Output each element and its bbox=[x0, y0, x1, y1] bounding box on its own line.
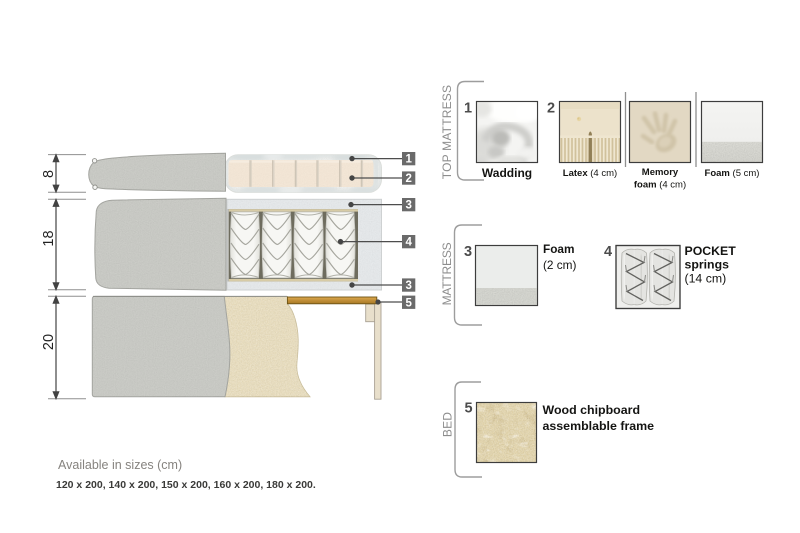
svg-text:120 x 200, 140 x 200, 150 x 20: 120 x 200, 140 x 200, 150 x 200, 160 x 2… bbox=[56, 479, 316, 491]
svg-text:foam (4 cm): foam (4 cm) bbox=[634, 180, 686, 191]
svg-text:Memory: Memory bbox=[642, 167, 679, 178]
svg-text:1: 1 bbox=[405, 154, 412, 166]
svg-text:assemblable frame: assemblable frame bbox=[543, 419, 655, 433]
svg-text:20: 20 bbox=[41, 334, 57, 350]
svg-text:4: 4 bbox=[604, 244, 612, 260]
svg-text:Foam: Foam bbox=[543, 242, 574, 256]
svg-text:POCKET: POCKET bbox=[685, 244, 737, 258]
svg-text:5: 5 bbox=[405, 297, 412, 309]
svg-text:Foam (5 cm): Foam (5 cm) bbox=[705, 168, 760, 179]
svg-text:2: 2 bbox=[547, 101, 555, 117]
svg-text:Available in sizes (cm): Available in sizes (cm) bbox=[58, 458, 182, 472]
svg-text:4: 4 bbox=[405, 237, 412, 249]
svg-text:Wadding: Wadding bbox=[482, 166, 532, 180]
svg-text:8: 8 bbox=[41, 170, 57, 178]
svg-text:TOP MATTRESS: TOP MATTRESS bbox=[440, 85, 454, 179]
svg-text:(2 cm): (2 cm) bbox=[543, 258, 576, 272]
svg-text:3: 3 bbox=[405, 280, 411, 292]
svg-text:Wood chipboard: Wood chipboard bbox=[543, 403, 641, 417]
svg-text:(14 cm): (14 cm) bbox=[685, 272, 727, 286]
svg-text:springs: springs bbox=[685, 258, 730, 272]
svg-text:Latex (4 cm): Latex (4 cm) bbox=[563, 168, 617, 179]
svg-text:MATTRESS: MATTRESS bbox=[440, 242, 454, 305]
svg-text:3: 3 bbox=[405, 200, 411, 212]
svg-text:18: 18 bbox=[41, 230, 57, 246]
svg-text:5: 5 bbox=[465, 401, 473, 417]
svg-text:3: 3 bbox=[464, 244, 472, 260]
svg-text:BED: BED bbox=[441, 412, 455, 437]
svg-text:2: 2 bbox=[405, 173, 411, 185]
svg-text:1: 1 bbox=[464, 101, 472, 117]
